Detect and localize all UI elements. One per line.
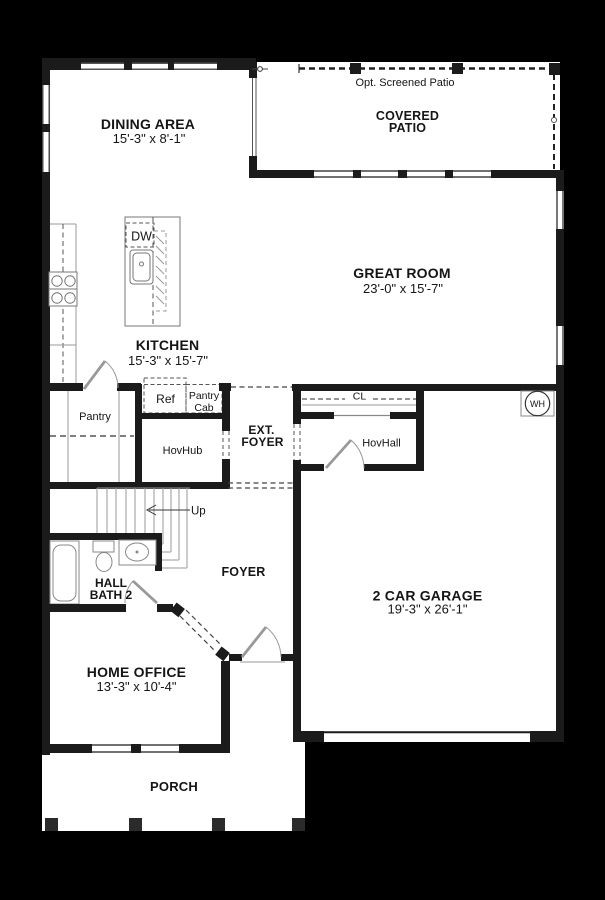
svg-text:DINING AREA: DINING AREA (101, 116, 195, 132)
svg-text:Up: Up (191, 506, 206, 518)
svg-text:19'-3" x 26'-1": 19'-3" x 26'-1" (388, 602, 468, 617)
svg-text:HovHub: HovHub (163, 445, 203, 457)
svg-text:Ref: Ref (156, 392, 175, 406)
svg-text:Pantry: Pantry (79, 411, 111, 423)
svg-text:Cab: Cab (194, 402, 213, 414)
svg-text:15'-3" x 8'-1": 15'-3" x 8'-1" (113, 131, 186, 146)
svg-text:GREAT ROOM: GREAT ROOM (353, 265, 450, 281)
svg-text:23'-0" x 15'-7": 23'-0" x 15'-7" (363, 281, 443, 296)
svg-text:FOYER: FOYER (241, 435, 283, 449)
svg-text:PATIO: PATIO (389, 121, 426, 135)
svg-text:Pantry: Pantry (189, 390, 220, 402)
svg-text:DW: DW (131, 230, 152, 244)
svg-text:15'-3" x 15'-7": 15'-3" x 15'-7" (128, 353, 208, 368)
svg-text:PORCH: PORCH (150, 779, 198, 794)
svg-text:HovHall: HovHall (362, 438, 401, 450)
svg-text:CL: CL (353, 391, 367, 403)
svg-text:HOME OFFICE: HOME OFFICE (87, 664, 186, 680)
svg-text:Opt. Screened Patio: Opt. Screened Patio (355, 77, 454, 89)
svg-text:FOYER: FOYER (221, 565, 265, 579)
svg-text:13'-3" x 10'-4": 13'-3" x 10'-4" (97, 679, 177, 694)
svg-text:WH: WH (530, 399, 545, 409)
svg-text:KITCHEN: KITCHEN (136, 337, 200, 353)
svg-text:BATH 2: BATH 2 (90, 588, 133, 602)
